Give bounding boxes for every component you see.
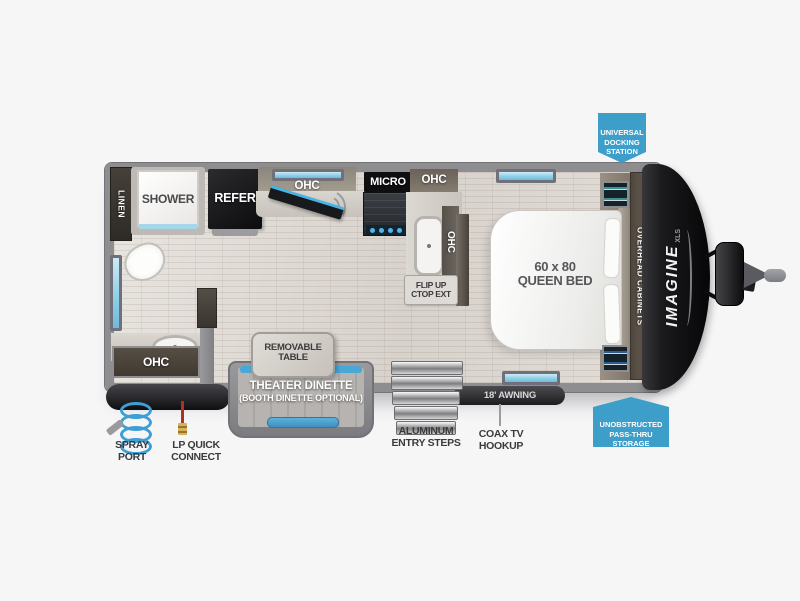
microwave: MICRO bbox=[364, 172, 412, 192]
booth-optional-label: (BOOTH DINETTE OPTIONAL) bbox=[230, 394, 372, 404]
passthru-storage-label: UNOBSTRUCTED PASS-THRU STORAGE bbox=[593, 420, 669, 448]
entry-steps bbox=[391, 361, 461, 428]
nightstand-top bbox=[602, 181, 629, 208]
spray-hose-icon bbox=[120, 402, 154, 440]
shower: SHOWER bbox=[131, 167, 205, 235]
refer-base bbox=[212, 229, 258, 236]
theater-dinette-label: THEATER DINETTE bbox=[230, 380, 372, 393]
removable-table: REMOVABLE TABLE bbox=[251, 332, 335, 378]
micro-label: MICRO bbox=[364, 172, 412, 192]
queen-bed-label: 60 x 80 QUEEN BED bbox=[500, 260, 610, 289]
brand-trim: XLS bbox=[675, 229, 682, 243]
refer-label: REFER bbox=[208, 169, 262, 227]
brand-logo: IMAGINEXLS bbox=[664, 198, 688, 358]
awning-label: 18' AWNING bbox=[455, 386, 565, 405]
kitchen-sink-drain bbox=[427, 244, 431, 248]
removable-table-label: REMOVABLE TABLE bbox=[253, 334, 333, 364]
bedroom-window-top bbox=[496, 169, 556, 183]
coax-label: COAX TV HOOKUP bbox=[465, 429, 537, 452]
bedroom-window-bottom bbox=[502, 371, 560, 385]
bath-window bbox=[110, 255, 122, 331]
coax-line bbox=[499, 404, 501, 426]
bath-ohc-cabinet: OHC bbox=[112, 346, 200, 378]
linen-label: LINEN bbox=[111, 168, 131, 240]
docking-station-label: UNIVERSAL DOCKING STATION bbox=[598, 128, 646, 156]
flip-up-label-tag: FLIP UP CTOP EXT bbox=[404, 275, 458, 305]
flip-up-label: FLIP UP CTOP EXT bbox=[405, 276, 457, 300]
passthru-storage-callout: UNOBSTRUCTED PASS-THRU STORAGE bbox=[593, 397, 669, 447]
bath-wall-cabinet bbox=[197, 288, 217, 328]
bath-ohc-label: OHC bbox=[114, 348, 198, 376]
awning-bar: 18' AWNING bbox=[455, 386, 565, 405]
linen-cabinet: LINEN bbox=[110, 167, 132, 241]
lp-connector-icon bbox=[178, 423, 187, 435]
ohc-cabinet-top: OHC bbox=[410, 169, 458, 192]
shower-door bbox=[139, 224, 197, 229]
entry-steps-label: ALUMINUM ENTRY STEPS bbox=[381, 426, 471, 449]
stove-knobs bbox=[370, 228, 375, 233]
refrigerator: REFER bbox=[208, 169, 262, 229]
lp-connect-label: LP QUICK CONNECT bbox=[158, 440, 234, 463]
dinette-footrest bbox=[267, 417, 339, 428]
brand-name: IMAGINE bbox=[664, 245, 681, 327]
ohc-top-label: OHC bbox=[410, 169, 458, 191]
propane-cover bbox=[715, 242, 744, 306]
spray-port-label: SPRAY PORT bbox=[104, 440, 160, 463]
docking-station-callout: UNIVERSAL DOCKING STATION bbox=[598, 113, 646, 163]
pillow-bottom bbox=[603, 284, 621, 345]
nightstand-bottom bbox=[602, 345, 629, 372]
lp-hose-icon bbox=[181, 401, 184, 424]
shower-label: SHOWER bbox=[131, 193, 205, 206]
floorplan-canvas: LINEN SHOWER REFER OHC OHC MICRO OHC OHC bbox=[0, 0, 800, 601]
hitch-coupler bbox=[764, 269, 786, 282]
brand-swoosh bbox=[681, 230, 692, 326]
